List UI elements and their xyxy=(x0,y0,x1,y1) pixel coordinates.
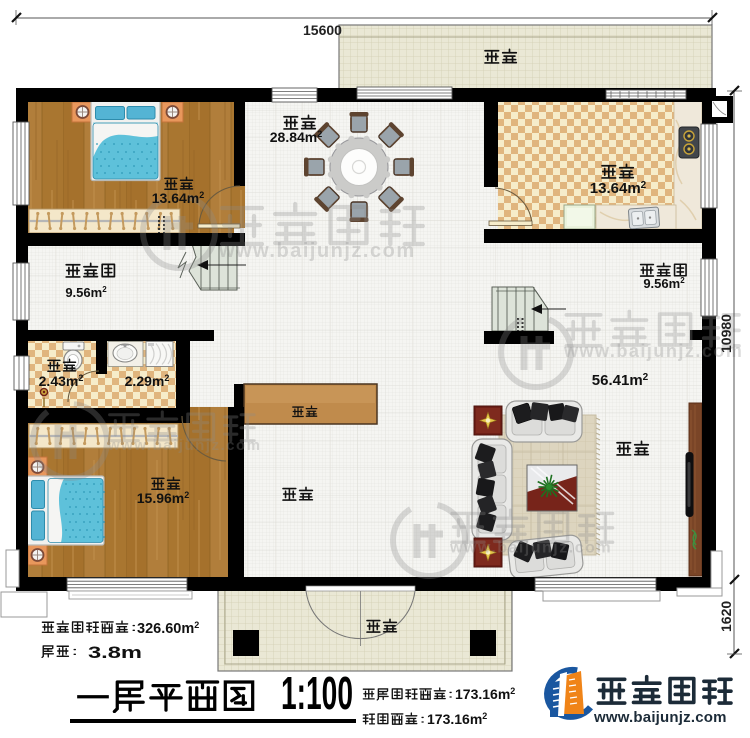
svg-text:www.baijunjz.com: www.baijunjz.com xyxy=(563,341,743,361)
svg-text:15600: 15600 xyxy=(303,22,342,38)
svg-text:2.29m2: 2.29m2 xyxy=(125,373,170,389)
svg-text:28.84m2: 28.84m2 xyxy=(270,129,323,145)
svg-text:13.64m2: 13.64m2 xyxy=(152,190,205,206)
svg-text:9.56m2: 9.56m2 xyxy=(643,276,685,291)
svg-text:1620: 1620 xyxy=(718,601,734,632)
svg-text:www.baijunjz.com: www.baijunjz.com xyxy=(593,709,727,726)
svg-text:10980: 10980 xyxy=(718,314,734,353)
svg-text:326.60m2: 326.60m2 xyxy=(137,620,199,637)
svg-text:www.baijunjz.com: www.baijunjz.com xyxy=(107,437,261,454)
svg-text:15.96m2: 15.96m2 xyxy=(137,490,190,506)
svg-text:13.64m2: 13.64m2 xyxy=(590,180,647,197)
svg-text:www.baijunjz.com: www.baijunjz.com xyxy=(218,240,416,262)
svg-text:3.8m: 3.8m xyxy=(88,643,142,662)
svg-text:2.43m2: 2.43m2 xyxy=(39,373,84,389)
svg-text:1:100: 1:100 xyxy=(281,667,353,719)
svg-text:173.16m2: 173.16m2 xyxy=(427,711,487,727)
svg-text:9.56m2: 9.56m2 xyxy=(65,285,107,300)
svg-text:173.16m2: 173.16m2 xyxy=(455,686,515,702)
svg-text:www.baijunjz.com: www.baijunjz.com xyxy=(449,540,612,557)
svg-text:56.41m2: 56.41m2 xyxy=(592,372,649,389)
